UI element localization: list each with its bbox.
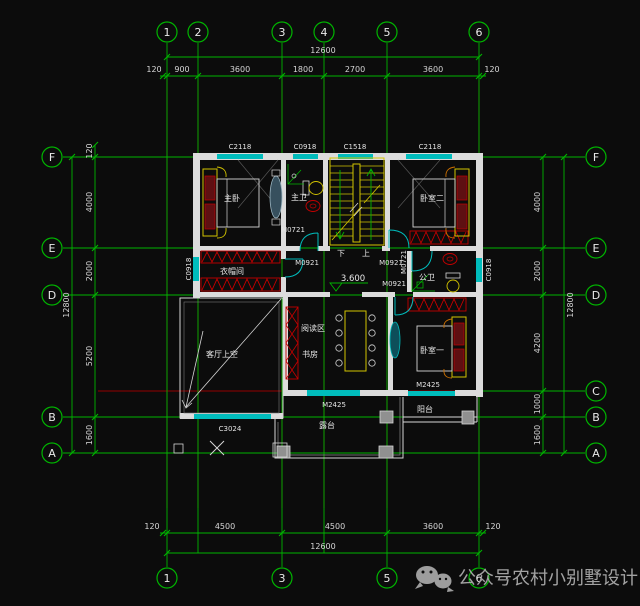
dim-text-left: 120 4000 2000 5200 1600 12800 bbox=[62, 143, 94, 445]
window-c3024 bbox=[194, 414, 271, 419]
label-m0921-bedroom1: M0921 bbox=[382, 280, 406, 288]
dim-left-seg-1: 2000 bbox=[85, 261, 94, 281]
dim-lines-right bbox=[543, 157, 564, 453]
wall-cloakroom-east-1 bbox=[281, 251, 286, 259]
door-m0921-bedroom2 bbox=[389, 230, 409, 248]
railing-columns bbox=[273, 411, 474, 458]
bed-master bbox=[217, 179, 259, 227]
bubble-top-4-label: 4 bbox=[321, 26, 328, 39]
room-label-cloakroom: 衣帽间 bbox=[220, 266, 244, 276]
dim-right-seg-2: 4200 bbox=[533, 333, 542, 353]
closet-hatch-1 bbox=[202, 252, 277, 262]
bubble-right-a-label: A bbox=[592, 447, 600, 460]
washbasin-inner bbox=[447, 257, 453, 261]
dim-text-top: 12600 120 900 3600 1800 2700 3600 120 bbox=[146, 46, 499, 74]
door-m2425-bedroom1 bbox=[408, 391, 455, 396]
bubble-bottom-3-label: 3 bbox=[279, 572, 286, 585]
door-m0921-bedroom1 bbox=[395, 297, 413, 315]
watermark-dot: · bbox=[504, 568, 510, 589]
room-label-master-bedroom: 主卧 bbox=[224, 193, 240, 203]
dim-bottom-seg-4: 120 bbox=[485, 522, 500, 531]
dim-lines-left bbox=[72, 145, 95, 453]
bubble-left-a-label: A bbox=[48, 447, 56, 460]
label-c0918-top: C0918 bbox=[294, 143, 317, 151]
closet-hatch-4 bbox=[409, 299, 464, 310]
dim-top-seg-0: 120 bbox=[146, 65, 161, 74]
wall-axis-d-2 bbox=[362, 292, 395, 297]
wall-axis-e-1 bbox=[193, 246, 300, 251]
window-c0918-west bbox=[193, 257, 199, 281]
label-m0721-masterbath: M0721 bbox=[281, 226, 305, 234]
chair bbox=[369, 330, 375, 336]
dimension-lines bbox=[69, 54, 567, 556]
bubble-bottom-5-label: 5 bbox=[384, 572, 391, 585]
label-c2118-left: C2118 bbox=[229, 143, 252, 151]
label-m0921-bedroom2: M0921 bbox=[379, 259, 403, 267]
dim-bottom-seg-2: 4500 bbox=[325, 522, 345, 531]
level-triangle bbox=[330, 283, 368, 291]
room-label-public-bath: 公卫 bbox=[419, 273, 435, 282]
axis-verticals bbox=[167, 43, 479, 567]
dim-right-seg-1: 2000 bbox=[533, 261, 542, 281]
dim-top-seg-4: 2700 bbox=[345, 65, 365, 74]
bubble-top-1-label: 1 bbox=[164, 26, 171, 39]
room-label-bedroom-one: 卧室一 bbox=[420, 345, 444, 355]
dim-right-seg-4: 1600 bbox=[533, 425, 542, 445]
dim-left-seg-0: 4000 bbox=[85, 192, 94, 212]
level-value: 3.600 bbox=[341, 274, 365, 284]
bubble-left-e-label: E bbox=[49, 242, 56, 255]
label-c1518: C1518 bbox=[344, 143, 367, 151]
dim-top-seg-1: 900 bbox=[174, 65, 189, 74]
staircase bbox=[330, 158, 384, 245]
headboard-panel bbox=[457, 176, 467, 200]
toilet-bowl bbox=[309, 182, 323, 195]
column bbox=[462, 411, 474, 424]
door-m2425-study bbox=[307, 390, 360, 396]
wall-axis-e-3 bbox=[382, 246, 389, 251]
shower-partition bbox=[288, 164, 304, 184]
bubble-right-e-label: E bbox=[593, 242, 600, 255]
stairs-center-rail bbox=[353, 164, 360, 242]
dim-top-overall: 12600 bbox=[310, 46, 335, 55]
wall-study-west bbox=[283, 297, 288, 390]
chair bbox=[369, 360, 375, 366]
washbasin bbox=[306, 201, 320, 212]
dim-bottom-overall: 12600 bbox=[310, 542, 335, 551]
dim-left-edge: 120 bbox=[85, 143, 94, 158]
dim-right-overall: 12800 bbox=[566, 292, 575, 317]
chair bbox=[369, 345, 375, 351]
master-bed bbox=[203, 160, 282, 238]
wall-south-1 bbox=[283, 390, 307, 396]
dim-ticks bbox=[69, 54, 567, 556]
bubble-right-b-label: B bbox=[592, 411, 600, 424]
window-c2118-right bbox=[406, 154, 452, 159]
wechat-eye bbox=[430, 571, 433, 574]
wall-bath-stairs bbox=[323, 153, 328, 251]
dim-bottom-seg-1: 4500 bbox=[215, 522, 235, 531]
headboard-panel bbox=[205, 176, 215, 200]
watermark: 公众号 · 农村小别墅设计 bbox=[415, 566, 638, 592]
toilet-tank bbox=[446, 273, 460, 278]
label-m0921-cloakroom: M0921 bbox=[295, 259, 319, 267]
door-m0721-publicbath bbox=[412, 251, 432, 271]
bubble-top-3-label: 3 bbox=[279, 26, 286, 39]
chair bbox=[369, 315, 375, 321]
wardrobe-slider-bedroom1 bbox=[390, 322, 400, 358]
reading-table bbox=[345, 311, 366, 371]
column bbox=[380, 411, 393, 423]
closet-hatch-3 bbox=[411, 232, 466, 243]
bubble-left-d-label: D bbox=[48, 289, 56, 302]
floor-plan-svg: 12600 120 900 3600 1800 2700 3600 120 12… bbox=[0, 0, 640, 606]
dim-left-seg-3: 1600 bbox=[85, 425, 94, 445]
study-furniture bbox=[286, 307, 375, 379]
column bbox=[277, 446, 290, 458]
dim-left-seg-2: 5200 bbox=[85, 346, 94, 366]
dim-bottom-seg-0: 120 bbox=[144, 522, 159, 531]
green-axis-lines bbox=[63, 43, 585, 567]
wechat-bubble-small-tail bbox=[447, 587, 454, 592]
room-label-terrace: 露台 bbox=[319, 420, 335, 430]
wall-south-2 bbox=[360, 390, 408, 396]
wall-axis-d-1 bbox=[193, 292, 330, 297]
bed-bedroom2 bbox=[413, 179, 455, 227]
dim-top-seg-3: 1800 bbox=[293, 65, 313, 74]
wechat-eye bbox=[445, 578, 447, 580]
wall-axis-e-2 bbox=[318, 246, 330, 251]
chair bbox=[336, 315, 342, 321]
wall-south-3 bbox=[455, 390, 476, 396]
window-c0918-east bbox=[476, 258, 482, 282]
chair bbox=[336, 330, 342, 336]
dim-right-seg-0: 4000 bbox=[533, 192, 542, 212]
room-label-reading-area: 阅读区 bbox=[301, 323, 325, 333]
label-c0918-west: C0918 bbox=[185, 258, 193, 281]
washbasin-inner bbox=[310, 204, 316, 208]
closet-hatch-2 bbox=[202, 279, 277, 290]
label-c3024: C3024 bbox=[219, 425, 242, 433]
label-c2118-right: C2118 bbox=[419, 143, 442, 151]
toilet-bowl bbox=[447, 280, 459, 292]
wechat-bubble-small bbox=[435, 574, 452, 589]
eave-marker-square bbox=[174, 444, 183, 453]
room-label-balcony: 阳台 bbox=[417, 404, 433, 414]
dim-bottom-seg-3: 3600 bbox=[423, 522, 443, 531]
floor-plan-canvas: 12600 120 900 3600 1800 2700 3600 120 12… bbox=[0, 0, 640, 606]
chair bbox=[336, 345, 342, 351]
column bbox=[379, 446, 393, 458]
dim-left-overall: 12800 bbox=[62, 292, 71, 317]
chairs bbox=[336, 315, 375, 366]
wardrobe-pier bbox=[272, 170, 280, 176]
walls bbox=[180, 153, 483, 419]
bubble-top-6-label: 6 bbox=[476, 26, 483, 39]
bubble-top-5-label: 5 bbox=[384, 26, 391, 39]
headboard-panel bbox=[457, 204, 467, 229]
wardrobe-slider-master bbox=[270, 176, 282, 218]
label-m2425-bedroom1: M2425 bbox=[416, 381, 440, 389]
room-label-study: 书房 bbox=[302, 349, 318, 359]
wechat-bubble-large-tail bbox=[415, 582, 423, 589]
stairs-up-label: 上 bbox=[362, 249, 370, 258]
bedside-lamp-arcs bbox=[444, 319, 452, 378]
headboard-panel bbox=[205, 204, 215, 229]
window-c2118-left bbox=[217, 154, 263, 159]
label-m2425-study: M2425 bbox=[322, 401, 346, 409]
headboard-panel bbox=[454, 349, 464, 371]
master-bath-fixtures bbox=[288, 164, 323, 212]
bubble-top-2-label: 2 bbox=[195, 26, 202, 39]
bubble-right-d-label: D bbox=[592, 289, 600, 302]
wechat-eye bbox=[439, 578, 441, 580]
dim-top-seg-6: 120 bbox=[484, 65, 499, 74]
wechat-eye bbox=[422, 571, 425, 574]
dim-top-seg-2: 3600 bbox=[230, 65, 250, 74]
room-label-master-bath: 主卫 bbox=[291, 192, 307, 202]
wall-axis-e-4 bbox=[430, 246, 476, 251]
dim-text-right: 4000 2000 4200 1000 1600 12800 bbox=[533, 192, 575, 445]
wall-axis-d-3 bbox=[413, 292, 476, 297]
stairs-down-label: 下 bbox=[337, 249, 345, 258]
watermark-name: 农村小别墅设计 bbox=[512, 568, 638, 589]
washbasin bbox=[443, 254, 457, 265]
dim-top-seg-5: 3600 bbox=[423, 65, 443, 74]
label-c0918-east: C0918 bbox=[485, 259, 493, 282]
room-label-living-void: 客厅上空 bbox=[206, 349, 238, 359]
room-label-bedroom-two: 卧室二 bbox=[420, 193, 444, 203]
bubble-right-c-label: C bbox=[592, 385, 600, 398]
headboard-panel bbox=[454, 323, 464, 345]
wall-cloakroom-east-2 bbox=[281, 277, 286, 292]
bubble-left-b-label: B bbox=[48, 411, 56, 424]
bubble-right-f-label: F bbox=[593, 151, 599, 164]
dim-right-seg-3: 1000 bbox=[533, 394, 542, 414]
wardrobe-pier bbox=[272, 219, 280, 225]
bubble-left-f-label: F bbox=[49, 151, 55, 164]
window-c0918-top bbox=[293, 154, 318, 159]
wechat-icon bbox=[415, 566, 454, 592]
bubble-bottom-1-label: 1 bbox=[164, 572, 171, 585]
chair bbox=[336, 360, 342, 366]
level-mark: 3.600 bbox=[330, 274, 368, 291]
